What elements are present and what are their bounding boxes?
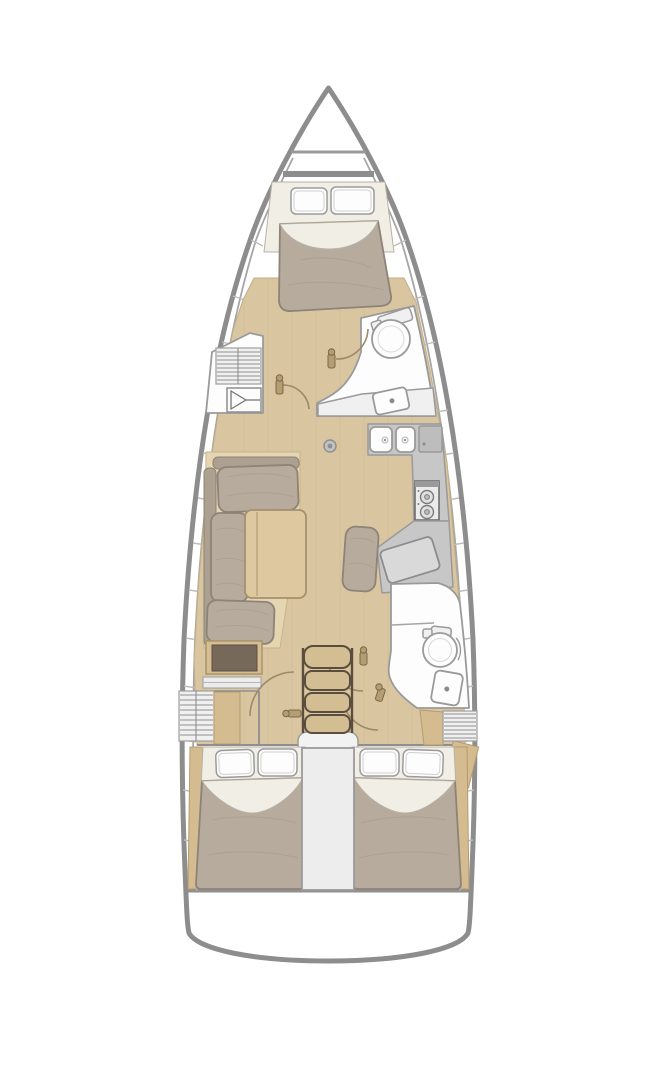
stove — [415, 481, 439, 520]
galley-sink-right — [396, 427, 415, 452]
port-aft-louver — [179, 691, 214, 741]
stair-step-3 — [305, 693, 350, 712]
saloon-shelf — [203, 677, 261, 688]
starboard-berth-pillow-left — [360, 749, 399, 776]
vberth-pillow-left — [291, 188, 327, 214]
saloon-cabinet — [206, 641, 262, 674]
nav-seat — [342, 526, 379, 592]
aft-sink — [430, 670, 463, 706]
stair-step-4 — [305, 715, 350, 733]
cabinet-symbol — [227, 388, 261, 412]
engine-compartment — [302, 748, 354, 890]
starboard-aft-cabin — [352, 747, 469, 889]
louvered-locker-forward — [216, 348, 261, 384]
galley-sink-left — [370, 427, 392, 452]
top-loading-fridge — [419, 426, 442, 452]
sofa-cushion-forward — [217, 465, 299, 513]
port-berth-pillow-right — [258, 749, 297, 776]
saloon-table — [245, 510, 306, 598]
sofa-cushion-side — [211, 513, 248, 602]
port-entry-locker — [214, 692, 240, 744]
forward-owner-cabin — [264, 182, 394, 311]
floor-plan-svg — [0, 0, 657, 1080]
companionway — [298, 646, 358, 758]
port-aft-cabin — [188, 747, 305, 889]
starboard-aft-louver — [443, 711, 477, 741]
cabinet-inset — [212, 645, 257, 671]
mast-foot-center — [328, 444, 333, 449]
vberth-pillow-right — [331, 187, 374, 214]
stair-step-1 — [304, 646, 351, 668]
port-wardrobe-locker — [206, 333, 263, 413]
yacht-floor-plan — [0, 0, 657, 1080]
sofa-cushion-aft — [206, 600, 274, 644]
stair-step-2 — [305, 671, 350, 690]
